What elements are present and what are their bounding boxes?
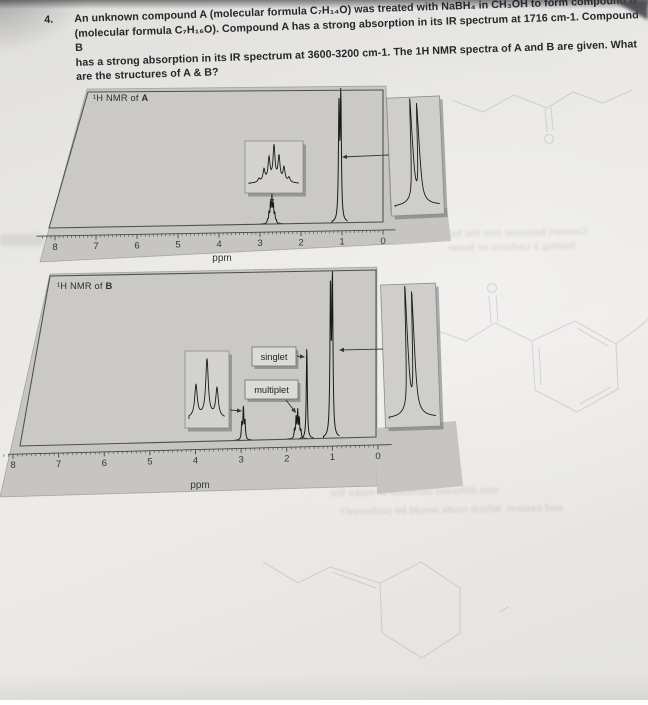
annotation-singlet: singlet xyxy=(252,347,299,369)
axis-tick-label: 6 xyxy=(134,240,139,251)
axis-tick-label: 2 xyxy=(284,453,289,464)
inset-doublet-expansion xyxy=(381,283,444,431)
figure-title: ¹H NMR of A xyxy=(93,93,149,103)
plot-area xyxy=(49,90,383,228)
axis-tick-label: 2 xyxy=(298,237,303,248)
photo-corner-shadow xyxy=(612,0,648,20)
bleed-text-line: and easiest. Which route would be prefer… xyxy=(340,503,563,518)
inset-doublet-expansion xyxy=(386,96,447,220)
annotation-text: singlet xyxy=(261,352,288,362)
axis-tick-label: 4 xyxy=(216,239,222,250)
axis-tick-label: 4 xyxy=(193,456,199,467)
axis-tick-label: 0 xyxy=(380,236,385,247)
axis-tick-label: 7 xyxy=(56,459,61,470)
figure-title: ¹H NMR of B xyxy=(57,281,113,291)
question-lines: An unknown compound A (molecular formula… xyxy=(74,0,646,85)
axis-tick-label: 6 xyxy=(102,458,107,469)
axis-tick-label: 1 xyxy=(330,452,335,463)
annotation-multiplet: multiplet xyxy=(245,380,301,402)
axis-tick-label: 3 xyxy=(238,454,243,465)
axis-tick-label: 3 xyxy=(257,238,262,249)
question-text: 4. An unknown compound A (molecular form… xyxy=(44,0,646,86)
question-number: 4. xyxy=(44,13,53,28)
nmr-spectrum-a-figure: 876543210ppm¹H NMR of A xyxy=(30,78,460,273)
axis-tick-label: 0 xyxy=(375,451,380,462)
axis-label-ppm: ppm xyxy=(190,480,209,491)
alkene-cyclohexane-structure xyxy=(263,562,508,658)
inset-methine-multiplet-expansion xyxy=(185,351,232,432)
axis-tick-label: 5 xyxy=(147,457,152,468)
photo-of-worksheet: Convert benzene into the follo having 3 … xyxy=(0,0,648,700)
chain-ketone-structure xyxy=(452,90,632,144)
annotation-text: multiplet xyxy=(254,385,289,395)
axis-tick-label: 7 xyxy=(93,241,98,252)
bleed-text-line: having 3 carbons or fewer xyxy=(448,241,576,254)
bleed-text-line: Convert benzene into the follo xyxy=(440,227,588,241)
figure-panel-extension xyxy=(376,421,463,494)
axis-tick-label: 5 xyxy=(175,240,180,251)
axis-tick-label: 1 xyxy=(339,237,344,248)
axis-tick-label: 8 xyxy=(52,242,57,253)
axis-tick-label: 8 xyxy=(10,460,15,471)
inset-septet-expansion xyxy=(245,141,306,197)
nmr-spectrum-b-figure: 876543210ppm¹H NMR of Bsingletmultiplet xyxy=(0,260,470,505)
